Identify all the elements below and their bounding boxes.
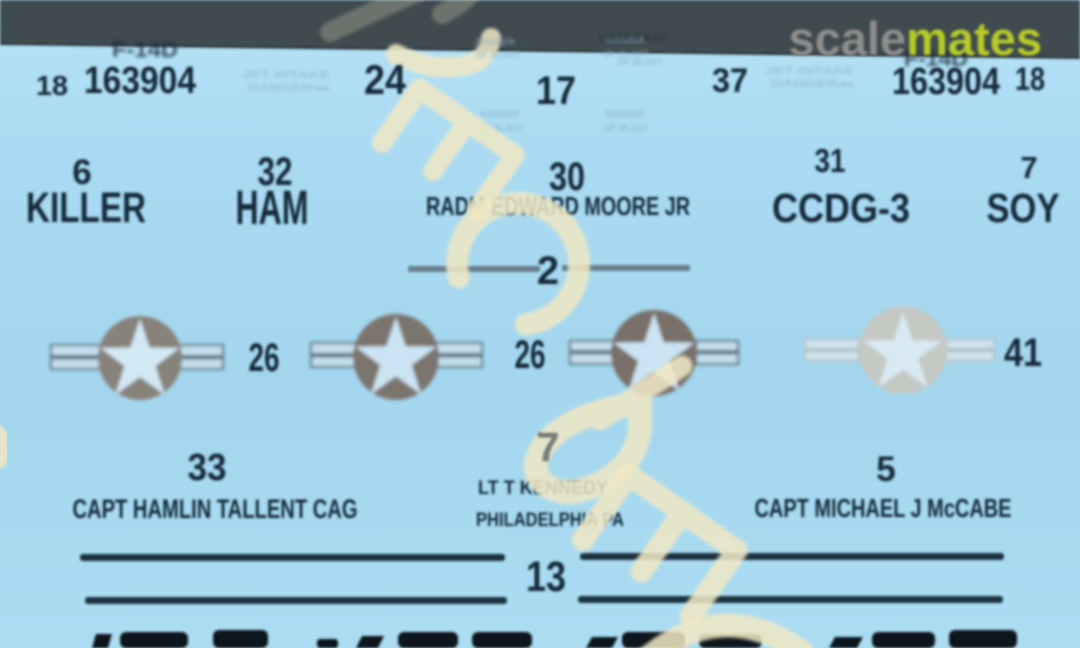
svg-text:DANGER◂◂: DANGER◂◂ bbox=[248, 83, 329, 94]
svg-text:7: 7 bbox=[1020, 150, 1037, 185]
svg-text:DANGER: DANGER bbox=[480, 109, 520, 119]
svg-text:7: 7 bbox=[537, 424, 560, 470]
svg-text:37: 37 bbox=[712, 62, 748, 100]
svg-text:DANGER◂◂: DANGER◂◂ bbox=[771, 79, 855, 90]
svg-text:18: 18 bbox=[36, 70, 68, 101]
svg-text:DANGER: DANGER bbox=[475, 37, 515, 47]
svg-text:5: 5 bbox=[876, 450, 895, 489]
svg-text:F-14D: F-14D bbox=[112, 37, 178, 62]
svg-text:scalemates: scalemates bbox=[789, 12, 1042, 65]
svg-text:HAM: HAM bbox=[236, 182, 309, 235]
svg-text:DANGER OF BLAST: DANGER OF BLAST bbox=[599, 32, 667, 44]
svg-text:17: 17 bbox=[536, 69, 576, 113]
svg-text:OF BLAST: OF BLAST bbox=[604, 123, 649, 133]
svg-text:KILLER: KILLER bbox=[26, 184, 146, 232]
svg-text:26: 26 bbox=[515, 333, 546, 377]
svg-text:18: 18 bbox=[1015, 61, 1045, 97]
svg-text:OF BLAST: OF BLAST bbox=[618, 57, 663, 67]
svg-text:OF BLAST: OF BLAST bbox=[476, 50, 521, 60]
svg-text:2: 2 bbox=[537, 249, 559, 293]
svg-text:CAPT MICHAEL J McCABE: CAPT MICHAEL J McCABE bbox=[755, 493, 1012, 523]
svg-text:41: 41 bbox=[1004, 331, 1042, 375]
svg-text:24: 24 bbox=[364, 56, 407, 103]
svg-text:JET INTAKE: JET INTAKE bbox=[242, 70, 330, 81]
svg-text:26: 26 bbox=[249, 336, 280, 380]
svg-text:31: 31 bbox=[815, 142, 846, 179]
svg-text:JET INTAKE: JET INTAKE bbox=[765, 66, 855, 77]
svg-text:163904: 163904 bbox=[892, 61, 1000, 103]
svg-text:163904: 163904 bbox=[84, 60, 196, 102]
svg-text:DANGER: DANGER bbox=[605, 109, 645, 119]
svg-text:33: 33 bbox=[188, 447, 227, 489]
svg-text:CAPT HAMLIN TALLENT CAG: CAPT HAMLIN TALLENT CAG bbox=[73, 494, 358, 524]
svg-text:SOY: SOY bbox=[987, 185, 1060, 231]
svg-text:13: 13 bbox=[526, 553, 566, 601]
svg-text:CCDG-3: CCDG-3 bbox=[772, 185, 910, 231]
